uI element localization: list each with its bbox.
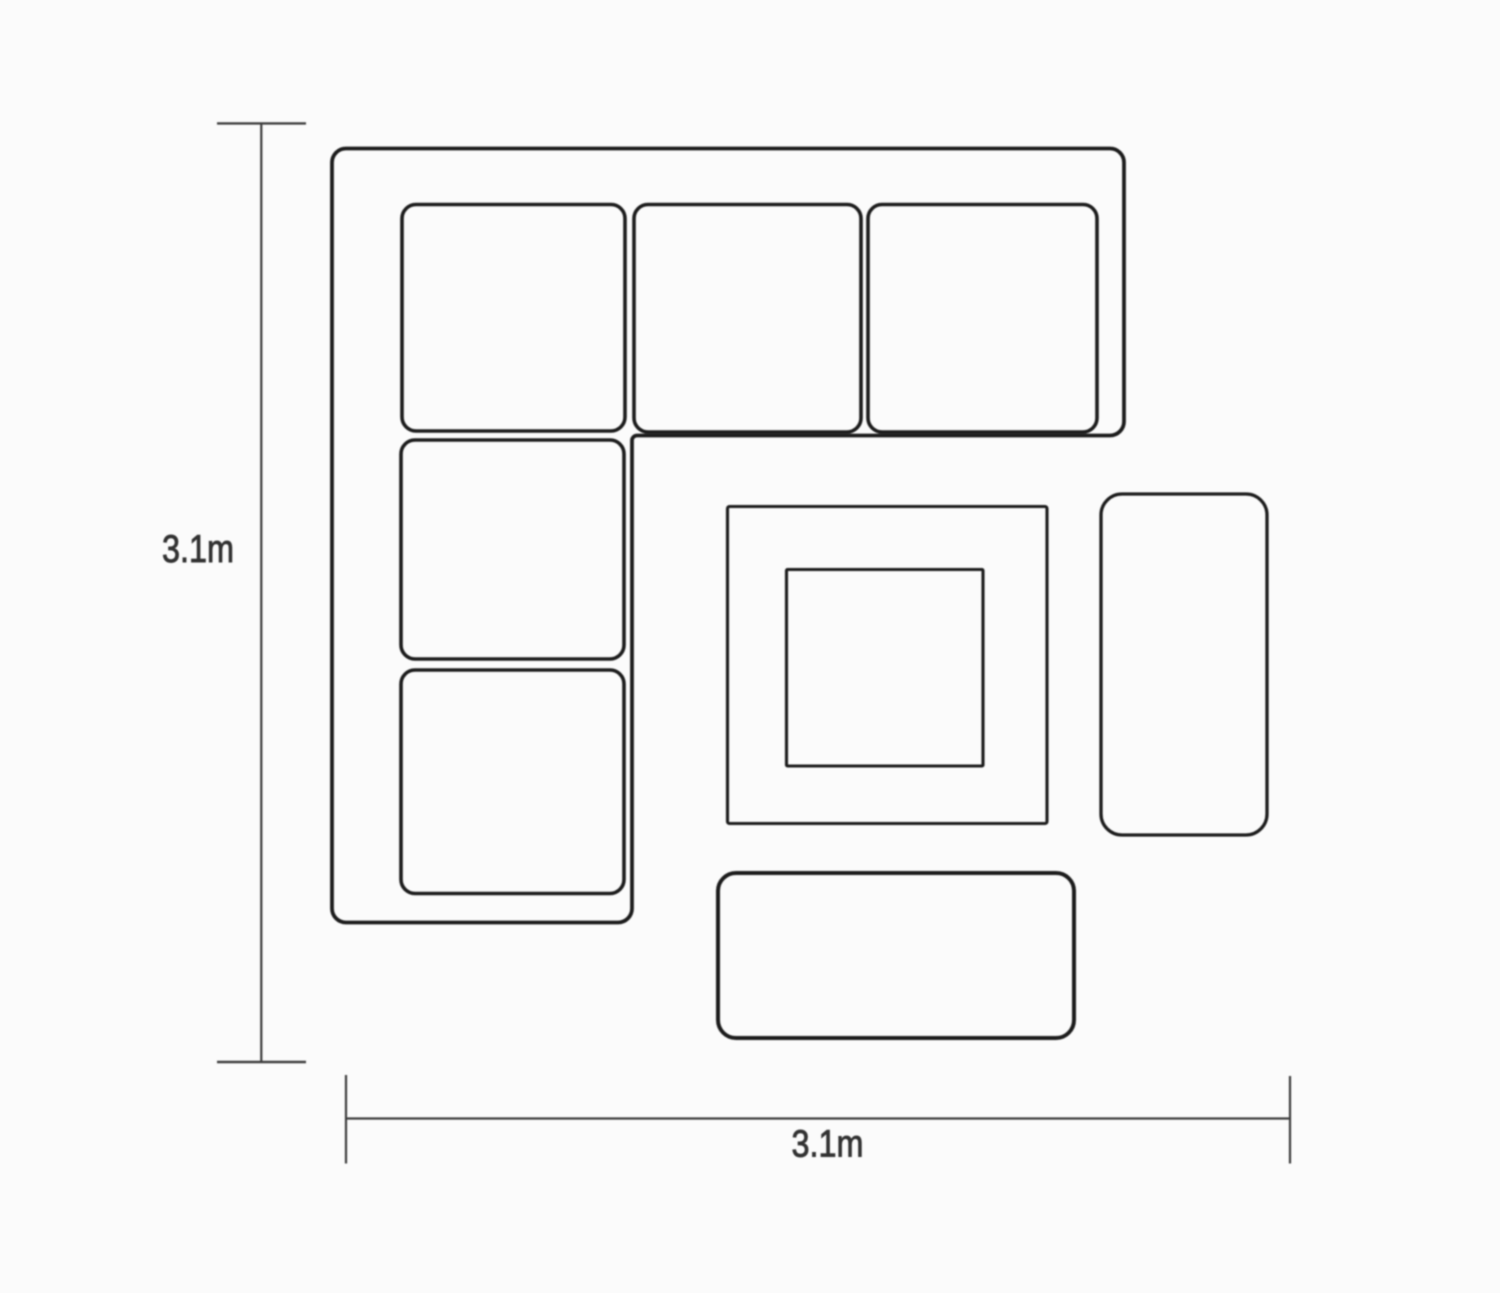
svg-text:3.1m: 3.1m <box>162 528 234 571</box>
svg-text:3.1m: 3.1m <box>792 1124 864 1166</box>
